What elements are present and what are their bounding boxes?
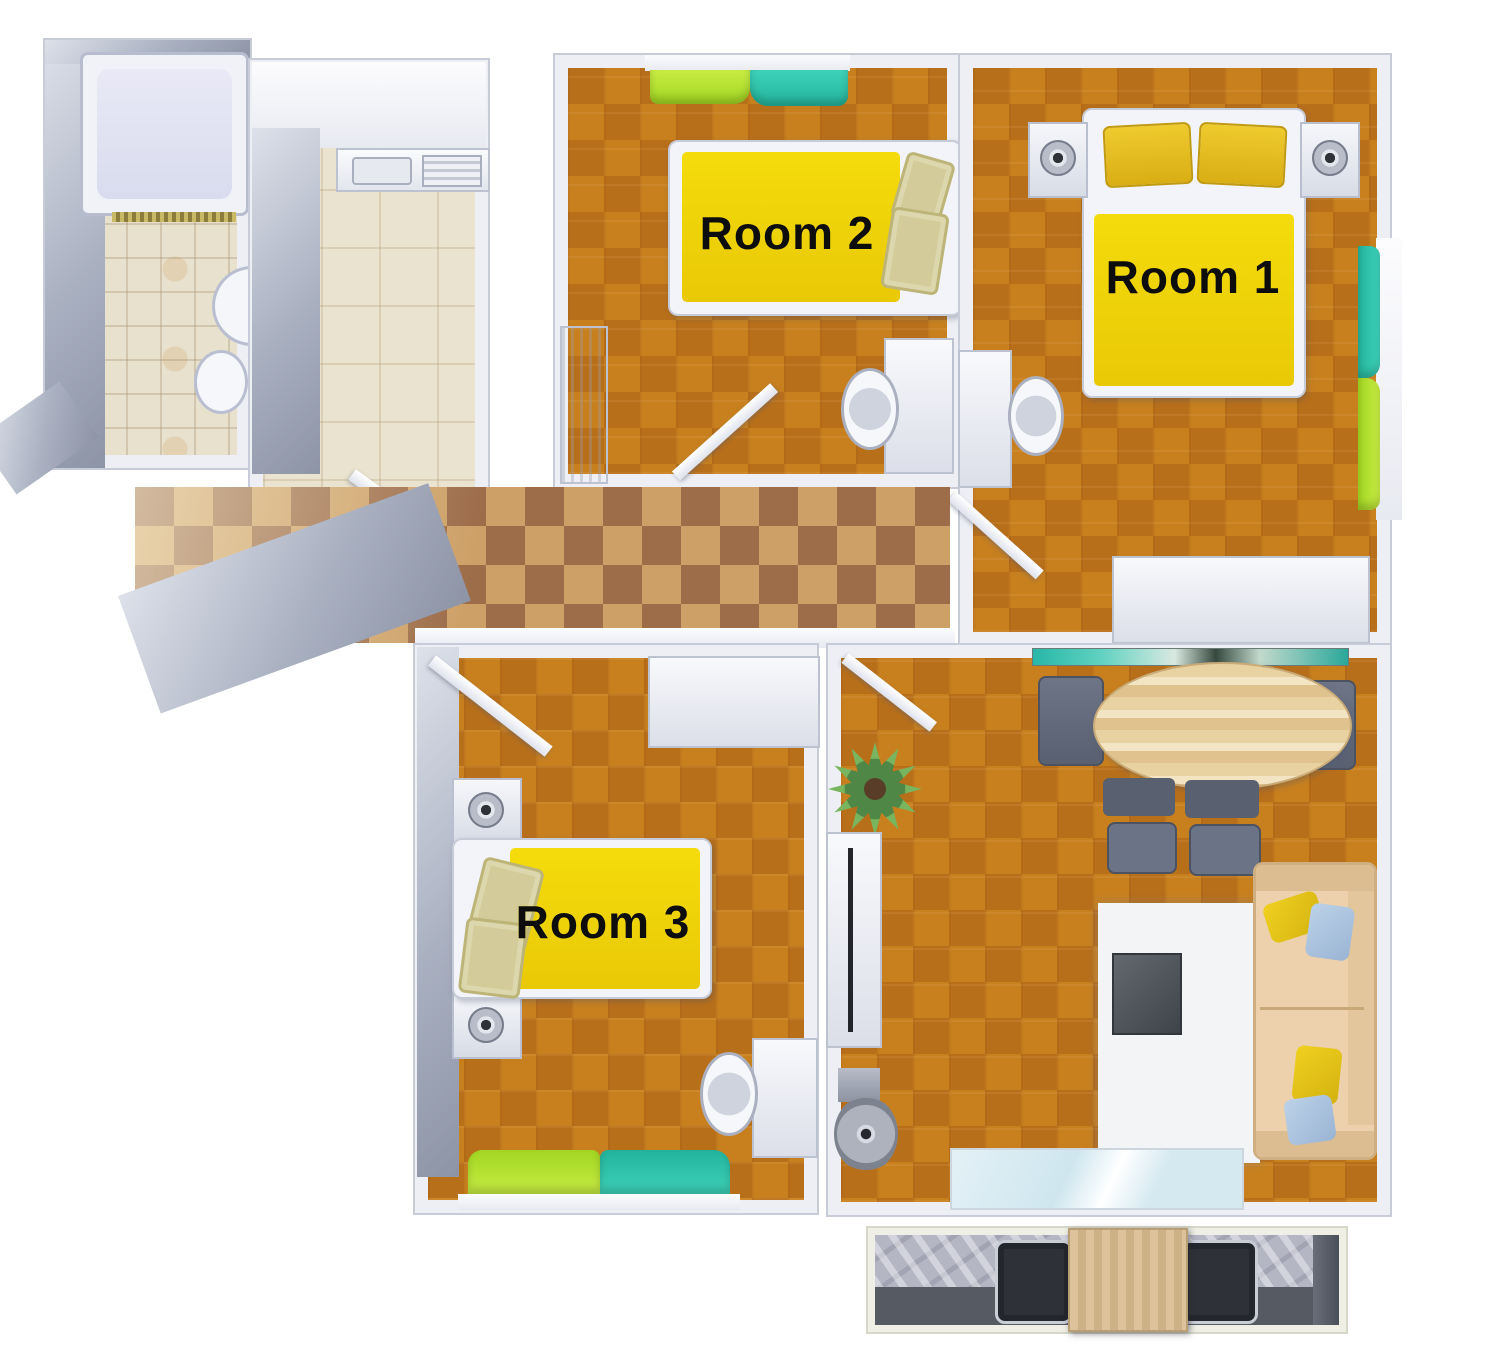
dining-chair-back: [1185, 780, 1259, 818]
dining-chair-seat: [1189, 824, 1261, 876]
sofa: [1253, 862, 1377, 1160]
stove: [422, 155, 482, 187]
room-3-desk-chair: [700, 1052, 758, 1136]
room-2-window-sill: [645, 55, 850, 71]
toilet: [194, 350, 248, 414]
bathtub-basin: [97, 69, 232, 199]
bedside-lamp: [1312, 140, 1348, 176]
room-3-window-sill: [458, 1194, 740, 1210]
room-3-shelf: [648, 656, 820, 748]
room-3-desk: [752, 1038, 818, 1158]
dining-table: [1093, 662, 1352, 790]
curtain-green: [650, 70, 750, 104]
bedside-lamp: [1040, 140, 1076, 176]
sofa-pillow-blue: [1304, 902, 1355, 962]
room-2-label: Room 2: [672, 206, 902, 260]
room-3-label: Room 3: [488, 895, 718, 949]
balcony-chair: [1180, 1240, 1258, 1324]
shelf-unit: [826, 832, 882, 1048]
bedside-lamp: [468, 1007, 504, 1043]
room-1-desk-chair: [1008, 376, 1064, 456]
sofa-armrest: [1256, 865, 1374, 891]
sofa-pillow-blue: [1283, 1094, 1337, 1146]
dining-chair: [1185, 780, 1259, 874]
curtain-teal: [1358, 246, 1380, 378]
curtain-teal: [600, 1150, 730, 1194]
dining-chair-back: [1103, 778, 1175, 816]
shelf-slit: [848, 848, 853, 1032]
room-1-sideboard: [1112, 556, 1370, 644]
kitchen-sink: [352, 157, 412, 185]
dining-chair: [1103, 778, 1175, 872]
curtain-green: [1358, 378, 1380, 510]
curtain-teal: [750, 70, 848, 106]
curtain-green: [468, 1150, 600, 1194]
pillow: [1102, 122, 1193, 189]
balcony-door-glass: [950, 1148, 1244, 1210]
bathtub: [80, 52, 249, 216]
room-1-label: Room 1: [1078, 250, 1308, 304]
coffee-table: [1112, 953, 1182, 1035]
pillow: [1196, 122, 1287, 189]
balcony-chair: [995, 1240, 1073, 1324]
floor-lamp: [834, 1096, 898, 1172]
balcony-wall: [1313, 1235, 1339, 1325]
balcony-table: [1068, 1228, 1188, 1332]
dining-chair-seat: [1107, 822, 1177, 874]
wardrobe: [560, 326, 608, 484]
kitchen-counter: [336, 148, 490, 192]
floor-plan: Room 2 Room 1 Room 3: [0, 0, 1500, 1352]
bedside-lamp: [468, 792, 504, 828]
sofa-cushion-seam: [1260, 1007, 1364, 1010]
bath-mat: [112, 212, 236, 222]
room-2-desk-chair: [841, 368, 899, 450]
room-1-desk: [958, 350, 1012, 488]
wall-segment: [252, 128, 320, 474]
